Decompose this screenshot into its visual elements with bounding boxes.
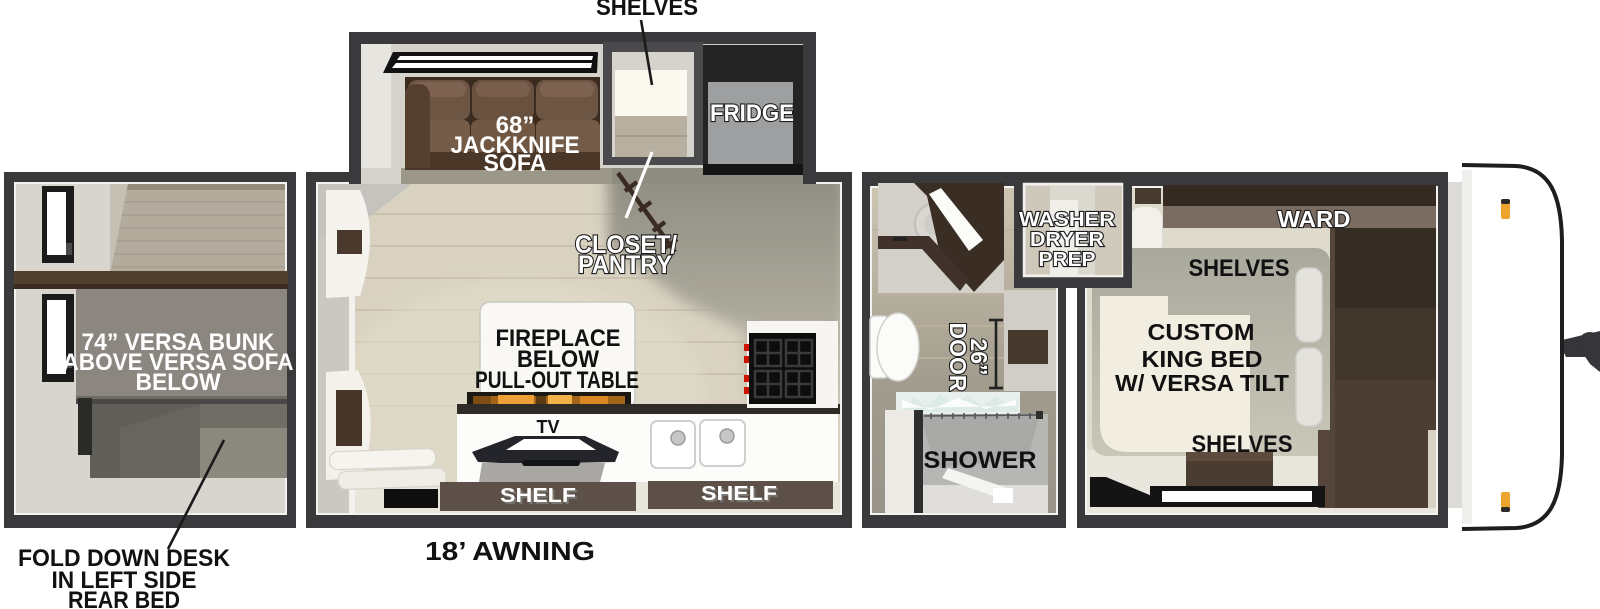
svg-text:KING BED: KING BED bbox=[1142, 346, 1263, 372]
svg-text:SOFA: SOFA bbox=[484, 150, 547, 177]
svg-text:TV: TV bbox=[536, 417, 559, 437]
svg-text:BELOW: BELOW bbox=[136, 369, 221, 396]
svg-text:SHELVES: SHELVES bbox=[596, 0, 698, 21]
svg-text:SHELF: SHELF bbox=[701, 483, 777, 505]
svg-text:WARD: WARD bbox=[1278, 206, 1351, 232]
svg-text:18’ AWNING: 18’ AWNING bbox=[425, 536, 595, 566]
svg-text:PREP: PREP bbox=[1039, 249, 1096, 271]
svg-text:CUSTOM: CUSTOM bbox=[1148, 319, 1255, 345]
svg-text:SHOWER: SHOWER bbox=[924, 447, 1037, 474]
svg-text:PANTRY: PANTRY bbox=[578, 251, 672, 279]
svg-text:W/ VERSA TILT: W/ VERSA TILT bbox=[1115, 370, 1289, 396]
svg-text:SHELF: SHELF bbox=[500, 485, 576, 507]
svg-text:FRIDGE: FRIDGE bbox=[710, 100, 794, 127]
svg-text:26”: 26” bbox=[966, 338, 992, 375]
svg-text:WASHER: WASHER bbox=[1019, 209, 1116, 231]
svg-text:PULL-OUT TABLE: PULL-OUT TABLE bbox=[475, 367, 639, 394]
svg-text:REAR BED: REAR BED bbox=[68, 587, 180, 609]
svg-text:DRYER: DRYER bbox=[1030, 229, 1105, 251]
svg-text:SHELVES: SHELVES bbox=[1189, 255, 1290, 282]
